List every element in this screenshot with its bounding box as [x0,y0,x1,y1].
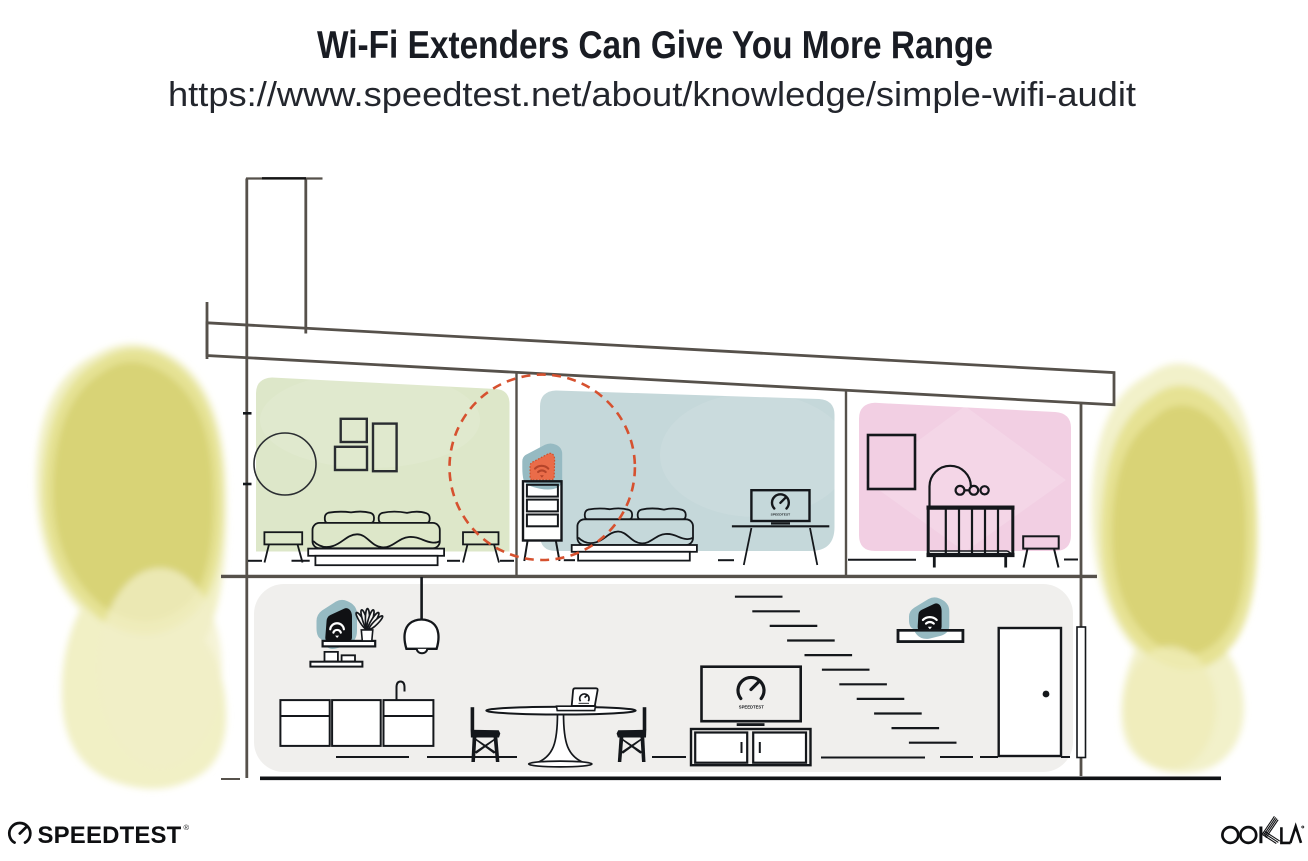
svg-text:®: ® [184,823,190,832]
svg-text:SPEEDTEST: SPEEDTEST [739,705,764,710]
svg-text:Wi-Fi Extenders Can Give You M: Wi-Fi Extenders Can Give You More Range [317,24,993,67]
svg-text:SPEEDTEST: SPEEDTEST [38,822,182,849]
svg-text:https://www.speedtest.net/abou: https://www.speedtest.net/about/knowledg… [168,76,1137,114]
svg-text:SPEEDTEST: SPEEDTEST [771,512,791,516]
